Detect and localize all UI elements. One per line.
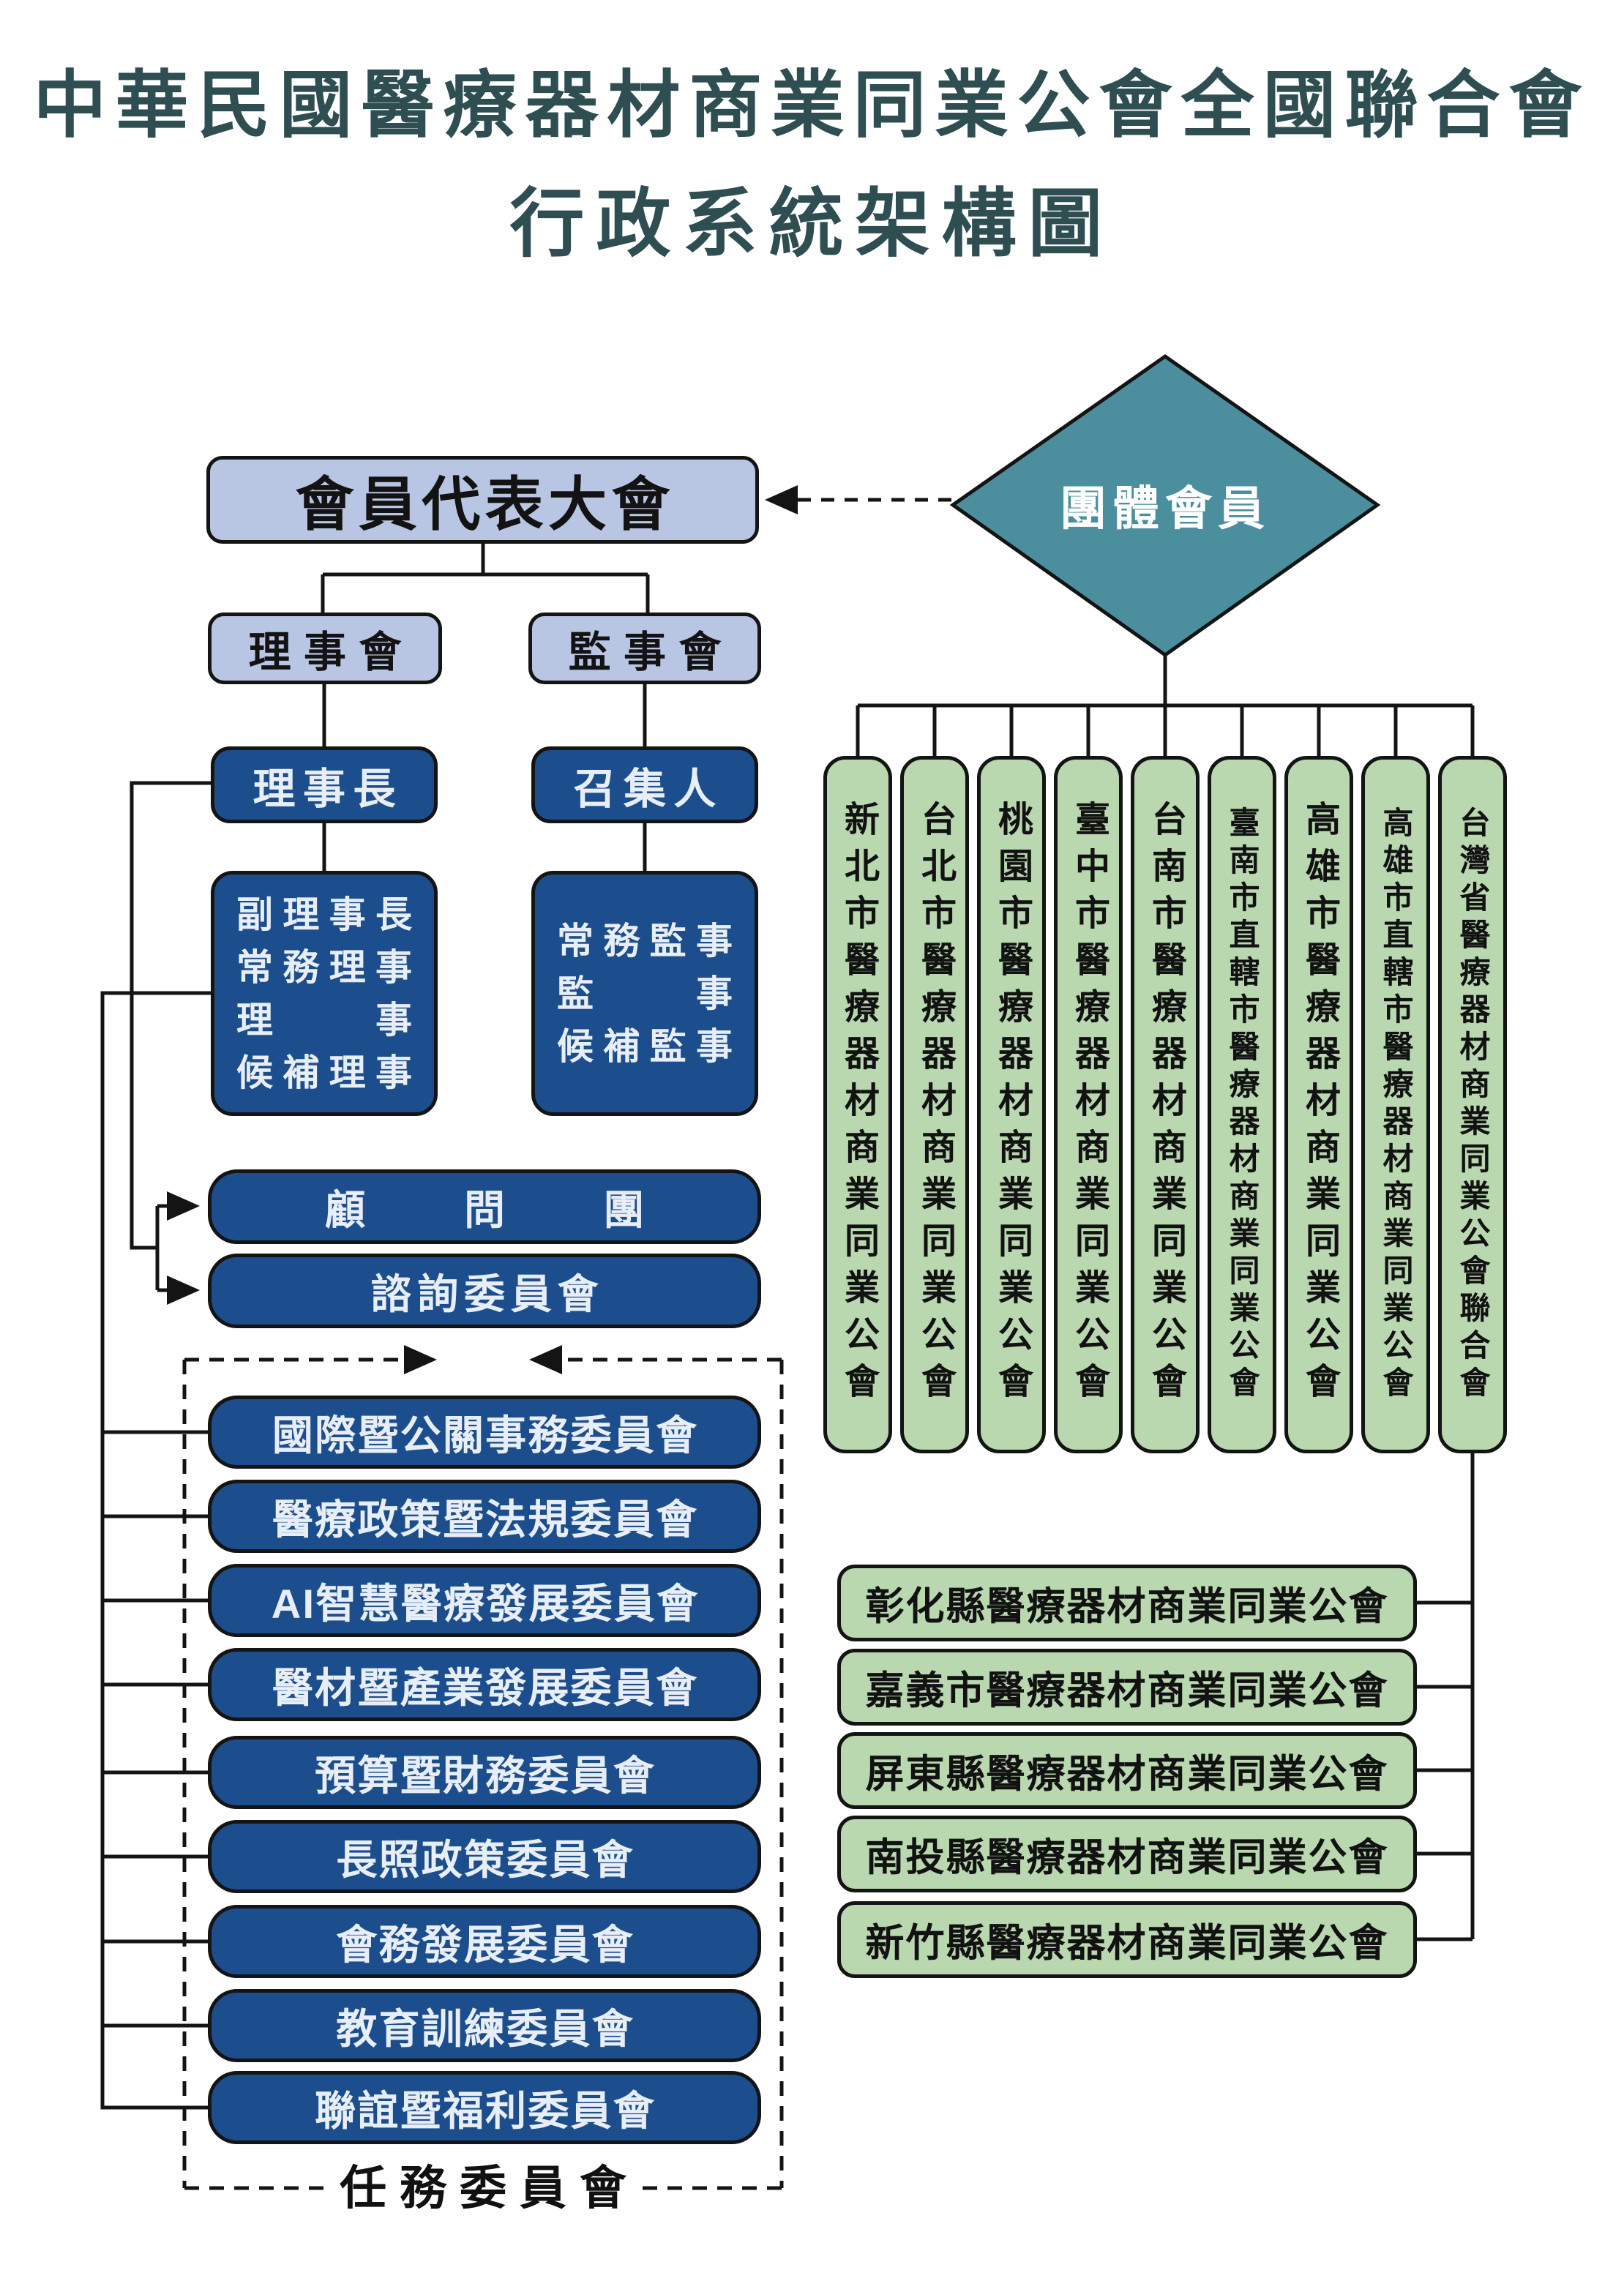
line-chairman-bracket xyxy=(132,783,211,1248)
task-committee-box: 會務發展委員會 xyxy=(208,1905,761,1978)
task-committee-box: 醫材暨產業發展委員會 xyxy=(208,1648,761,1721)
city-association-box: 台灣省醫療器材商業同業公會聯合會 xyxy=(1438,756,1507,1453)
directors-line: 候補理事 xyxy=(236,1046,412,1099)
chairman-box: 理事長 xyxy=(211,746,438,823)
supervisors-line: 常務監事 xyxy=(557,915,733,967)
task-committee-box: 聯誼暨福利委員會 xyxy=(208,2071,761,2144)
task-committee-box: 國際暨公關事務委員會 xyxy=(208,1396,761,1469)
task-committee-box: 長照政策委員會 xyxy=(208,1820,761,1893)
directors-line: 理事 xyxy=(236,994,412,1046)
advisors-group-box: 顧問團 xyxy=(208,1169,761,1244)
org-chart-page: 中華民國醫療器材商業同業公會全國聯合會 行政系統架構圖 xyxy=(0,0,1624,2281)
city-association-box: 臺南市直轄市醫療器材商業同業公會 xyxy=(1208,756,1276,1453)
page-title-line1: 中華民國醫療器材商業同業公會全國聯合會 xyxy=(0,45,1624,151)
task-committee-box: 教育訓練委員會 xyxy=(208,1989,761,2062)
board-of-directors-box: 理事會 xyxy=(208,613,442,684)
page-title-line2: 行政系統架構圖 xyxy=(0,164,1624,271)
city-association-box: 台南市醫療器材商業同業公會 xyxy=(1131,756,1200,1453)
group-member-label: 團體會員 xyxy=(1060,471,1271,539)
city-association-box: 桃園市醫療器材商業同業公會 xyxy=(977,756,1046,1453)
supervisors-line: 監事 xyxy=(557,967,733,1020)
task-committee-box: 預算暨財務委員會 xyxy=(208,1736,761,1809)
convener-box: 召集人 xyxy=(531,746,758,823)
city-association-box: 高雄市直轄市醫療器材商業同業公會 xyxy=(1361,756,1430,1453)
county-association-box: 彰化縣醫療器材商業同業公會 xyxy=(837,1565,1417,1641)
directors-members-box: 副理事長 常務理事 理事 候補理事 xyxy=(211,871,438,1116)
city-association-box: 新北市醫療器材商業同業公會 xyxy=(823,756,892,1453)
county-association-box: 南投縣醫療器材商業同業公會 xyxy=(837,1816,1417,1892)
assembly-box: 會員代表大會 xyxy=(206,456,759,544)
city-association-box: 臺中市醫療器材商業同業公會 xyxy=(1054,756,1123,1453)
advisory-committee-box: 諮詢委員會 xyxy=(208,1254,761,1328)
city-association-box: 高雄市醫療器材商業同業公會 xyxy=(1284,756,1353,1453)
directors-line: 常務理事 xyxy=(236,941,412,994)
city-association-box: 台北市醫療器材商業同業公會 xyxy=(900,756,969,1453)
county-association-box: 屏東縣醫療器材商業同業公會 xyxy=(837,1732,1417,1809)
directors-line: 副理事長 xyxy=(236,888,412,941)
supervisors-members-box: 常務監事 監事 候補監事 xyxy=(531,871,758,1116)
board-of-supervisors-box: 監事會 xyxy=(528,613,761,684)
supervisors-line: 候補監事 xyxy=(557,1020,733,1073)
county-association-box: 嘉義市醫療器材商業同業公會 xyxy=(837,1649,1417,1726)
task-committee-box: 醫療政策暨法規委員會 xyxy=(208,1480,761,1553)
county-association-box: 新竹縣醫療器材商業同業公會 xyxy=(837,1901,1417,1978)
task-committee-box: AI智慧醫療發展委員會 xyxy=(208,1564,761,1637)
task-committees-label: 任務委員會 xyxy=(326,2160,640,2216)
